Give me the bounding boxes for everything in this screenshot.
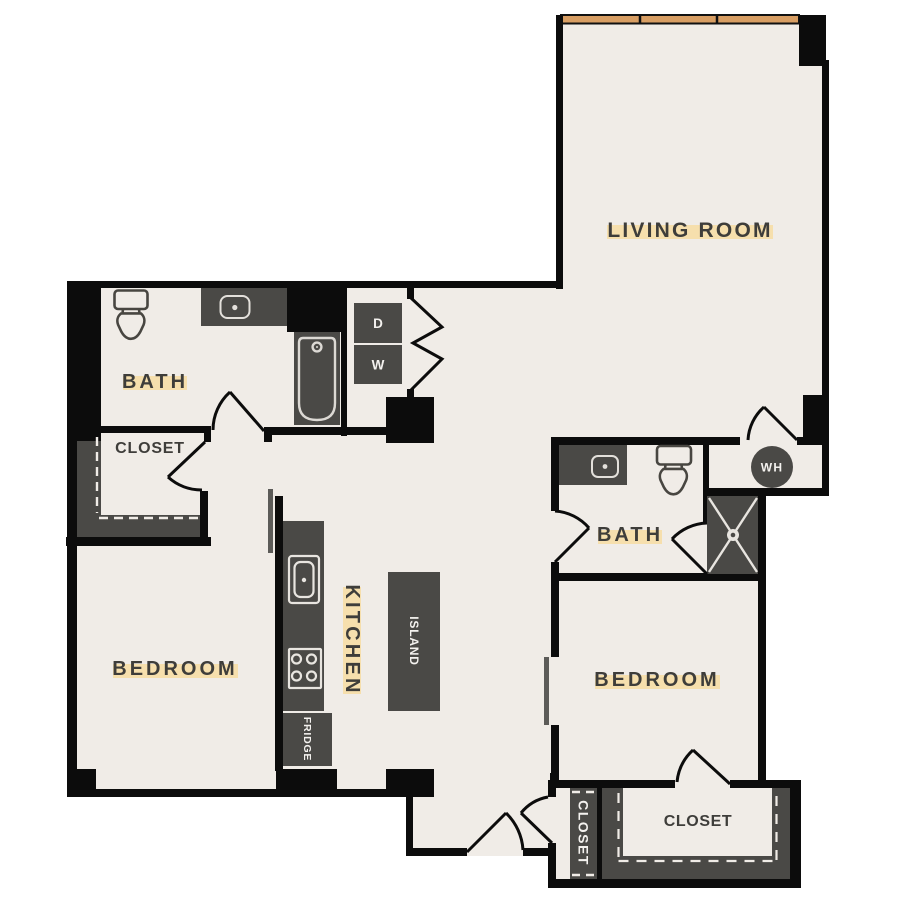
- svg-text:FRIDGE: FRIDGE: [301, 717, 313, 761]
- svg-text:BATH: BATH: [597, 524, 663, 546]
- svg-text:BATH: BATH: [122, 371, 188, 393]
- svg-text:ISLAND: ISLAND: [407, 616, 421, 665]
- svg-text:W: W: [372, 358, 385, 373]
- svg-text:D: D: [373, 316, 383, 331]
- svg-text:KITCHEN: KITCHEN: [341, 584, 363, 695]
- svg-text:BEDROOM: BEDROOM: [594, 669, 719, 691]
- svg-text:BEDROOM: BEDROOM: [112, 658, 237, 680]
- svg-text:CLOSET: CLOSET: [576, 800, 592, 866]
- svg-text:CLOSET: CLOSET: [115, 440, 185, 457]
- svg-text:WH: WH: [761, 461, 783, 475]
- svg-text:CLOSET: CLOSET: [664, 813, 733, 830]
- svg-text:LIVING ROOM: LIVING ROOM: [607, 219, 772, 242]
